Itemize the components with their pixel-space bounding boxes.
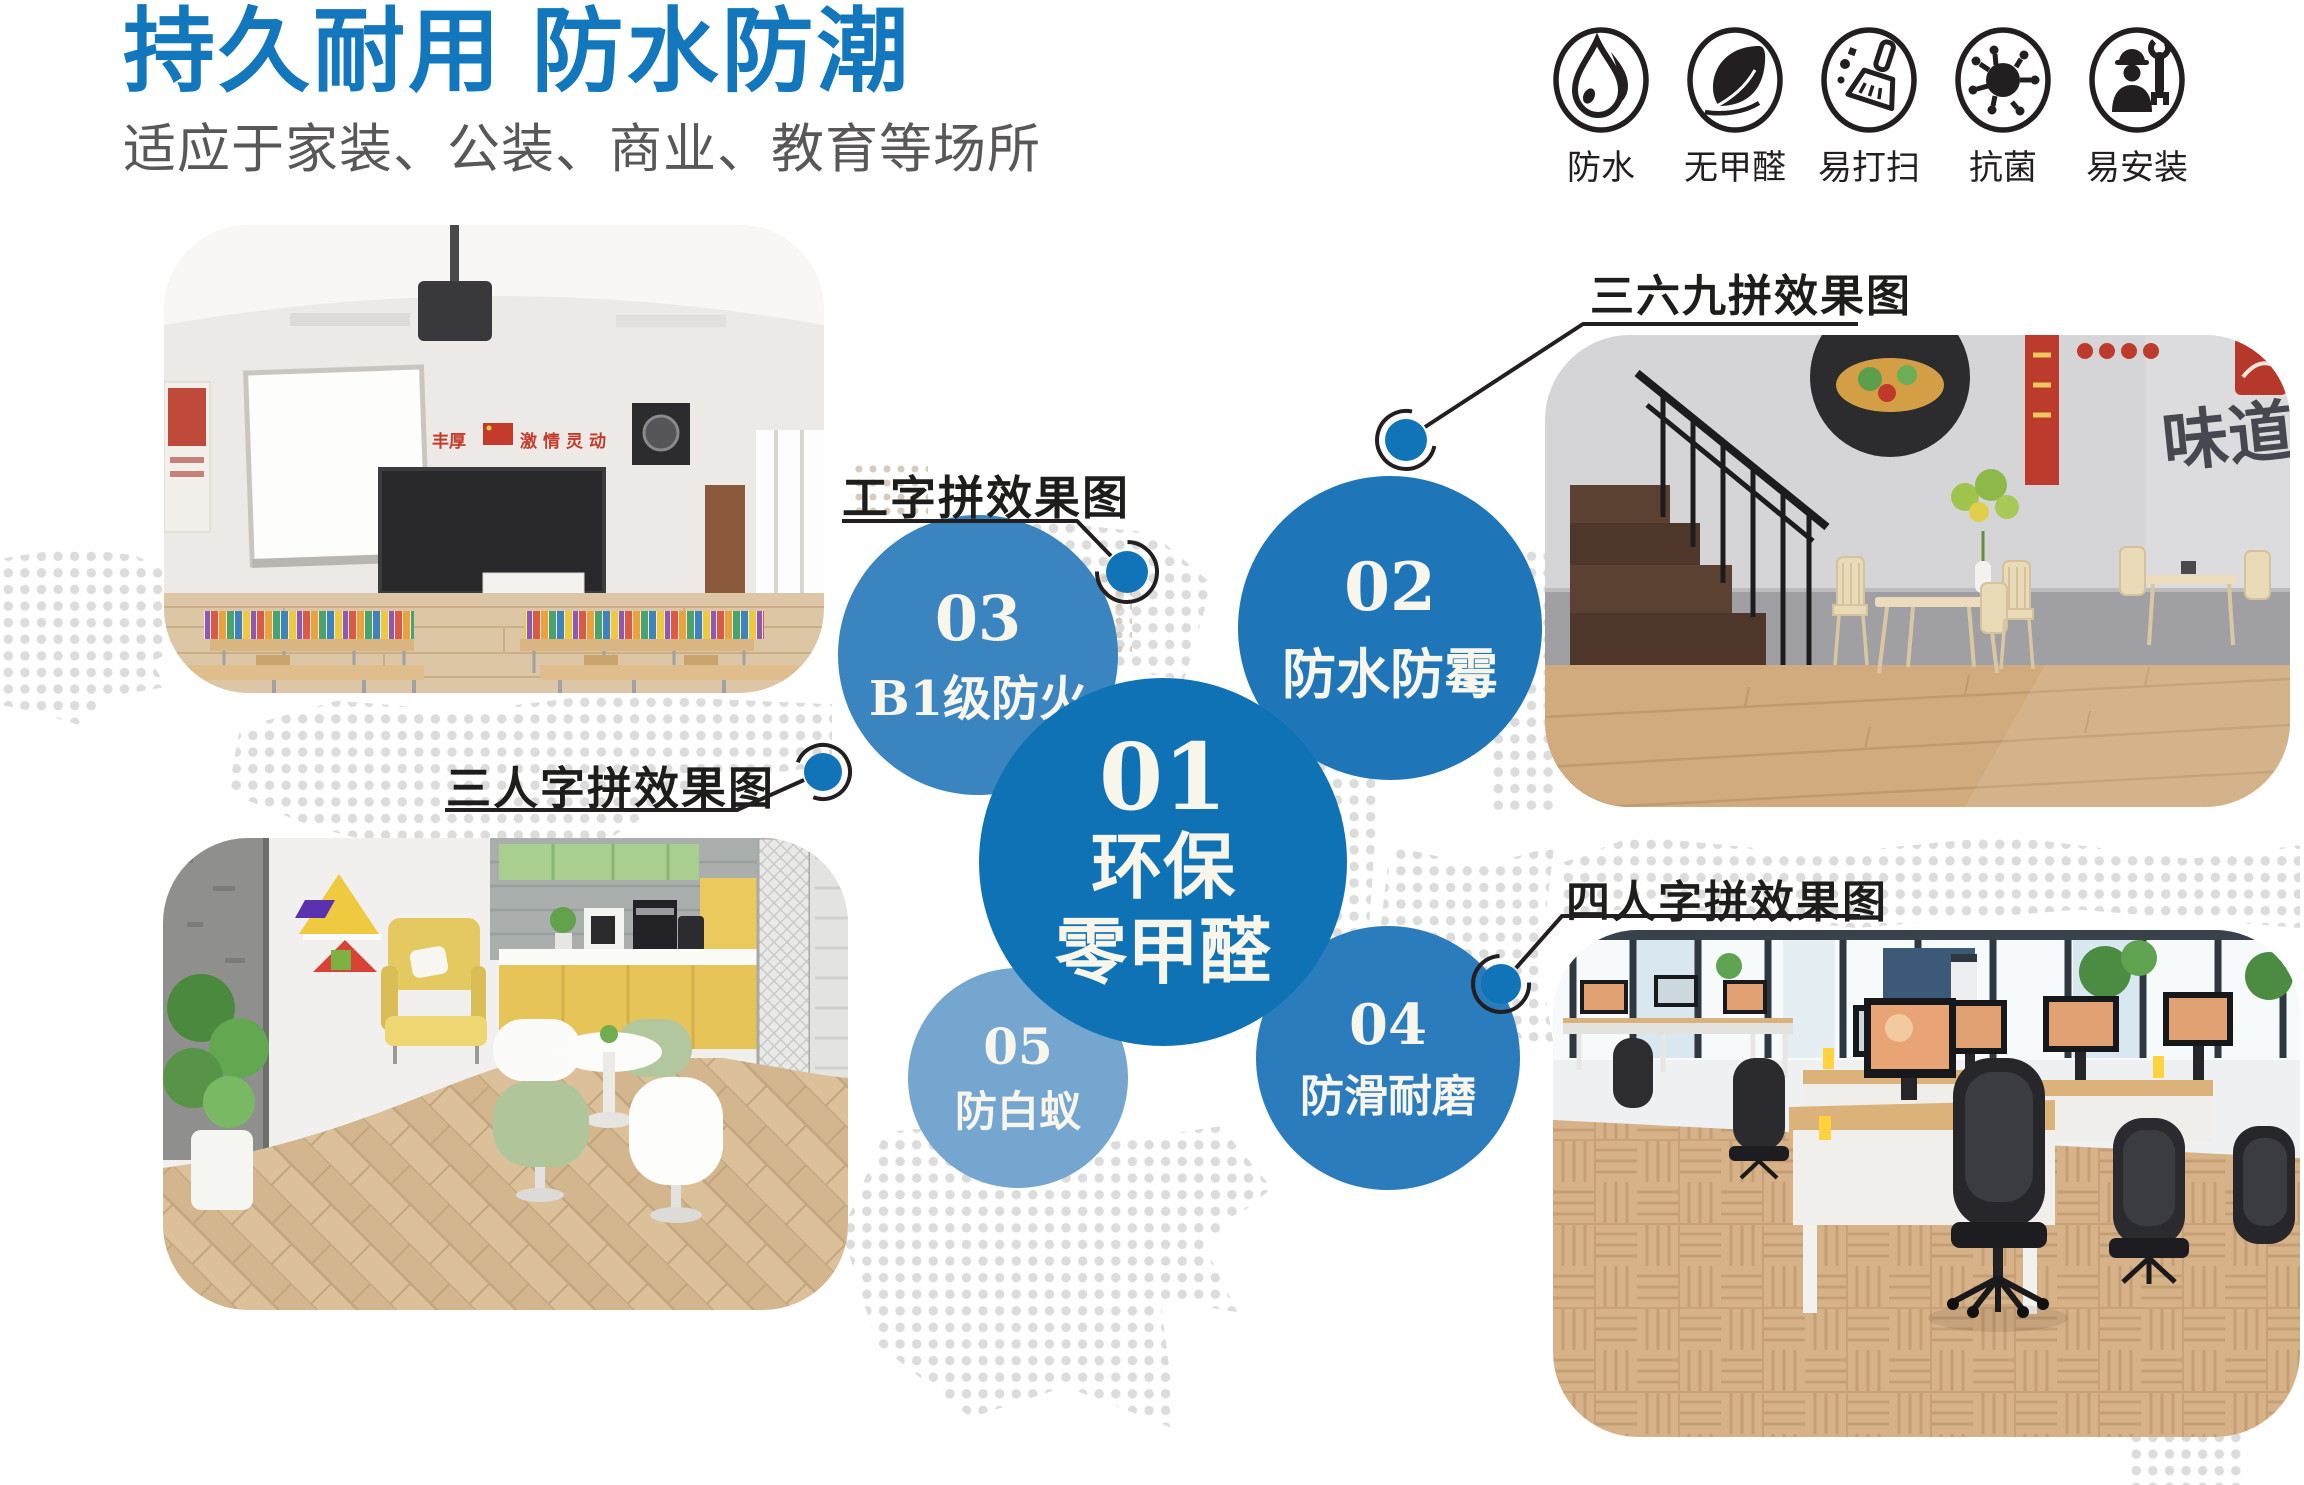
restaurant-scene: 味道	[1545, 335, 2290, 807]
bubble-number: 04	[1349, 992, 1427, 1058]
bubble-label: 防水防霉	[1282, 630, 1498, 709]
feature-antibacterial: 抗菌	[1944, 26, 2062, 189]
classroom-scene: 丰厚 激情灵动	[164, 225, 824, 693]
feature-label: 易安装	[2086, 140, 2188, 189]
map-dots	[0, 548, 172, 726]
broom-icon	[1821, 26, 1917, 134]
feature-label: 防水	[1567, 140, 1635, 189]
red-badge	[2235, 337, 2287, 395]
bubble-number: 03	[935, 582, 1021, 655]
yellow-bottle	[1823, 1048, 1834, 1069]
lounge-photo	[163, 838, 848, 1310]
callout-label-4-herringbone: 四人字拼效果图	[1566, 866, 1888, 930]
callout-label-369-pattern: 三六九拼效果图	[1590, 260, 1912, 324]
kettle	[678, 916, 704, 952]
bubble-number: 05	[983, 1017, 1053, 1076]
water-drop-icon	[1553, 26, 1649, 134]
installer-icon	[2089, 26, 2185, 134]
leaf-icon	[1687, 26, 1783, 134]
mural-text: 味道	[2159, 391, 2290, 482]
feature-easy-clean: 易打扫	[1810, 26, 1928, 189]
feature-strip: 防水 无甲醛	[1542, 26, 2196, 189]
callout-label-i-pattern: 工字拼效果图	[842, 462, 1130, 528]
feature-label: 无甲醛	[1684, 140, 1786, 189]
header: 持久耐用 防水防潮 适应于家装、公装、商业、教育等场所	[123, 4, 1041, 183]
page-title: 持久耐用 防水防潮	[123, 4, 1041, 101]
ceiling-light	[616, 315, 726, 327]
callout-dot-ring	[1377, 411, 1434, 469]
restaurant-photo: 味道	[1545, 335, 2290, 807]
bubble-number: 02	[1344, 548, 1436, 626]
counter-top	[499, 949, 758, 965]
banner-text: 丰厚	[432, 431, 466, 451]
ceiling-light	[290, 313, 410, 326]
yellow-bottle	[1819, 1116, 1831, 1140]
banner-text: 激情灵动	[520, 431, 612, 451]
feature-waterproof: 防水	[1542, 26, 1660, 189]
callout-label-3-herringbone: 三人字拼效果图	[446, 752, 775, 817]
bubble-number: 01	[1099, 729, 1227, 826]
lounge-scene	[163, 838, 848, 1310]
feature-label: 抗菌	[1969, 140, 2037, 189]
classroom-photo: 丰厚 激情灵动	[164, 225, 824, 693]
bubble-label: 防滑耐磨	[1300, 1060, 1476, 1124]
desk-dividers	[204, 611, 414, 639]
office-photo	[1553, 930, 2300, 1437]
yellow-bottle	[2153, 1056, 2164, 1078]
feature-label: 易打扫	[1818, 140, 1920, 189]
office-scene	[1553, 930, 2300, 1437]
callout-dot	[1385, 419, 1427, 461]
virus-icon	[1955, 26, 2051, 134]
bubble-label: 零甲醛	[1055, 910, 1271, 995]
feature-no-formaldehyde: 无甲醛	[1676, 26, 1794, 189]
bubble-01-eco-zero-formaldehyde: 01 环保 零甲醛	[979, 678, 1347, 1046]
page-subtitle: 适应于家装、公装、商业、教育等场所	[123, 107, 1041, 183]
page: 持久耐用 防水防潮 适应于家装、公装、商业、教育等场所 防水	[0, 0, 2304, 1485]
coffee-machine	[633, 900, 677, 952]
desk-dividers	[524, 611, 764, 639]
bubble-label: 防白蚁	[955, 1078, 1081, 1139]
door	[705, 485, 745, 607]
window	[756, 430, 824, 615]
counter-plant	[550, 907, 576, 933]
bubble-label: 环保	[1091, 825, 1235, 910]
projector	[418, 281, 492, 341]
feature-easy-install: 易安装	[2078, 26, 2196, 189]
